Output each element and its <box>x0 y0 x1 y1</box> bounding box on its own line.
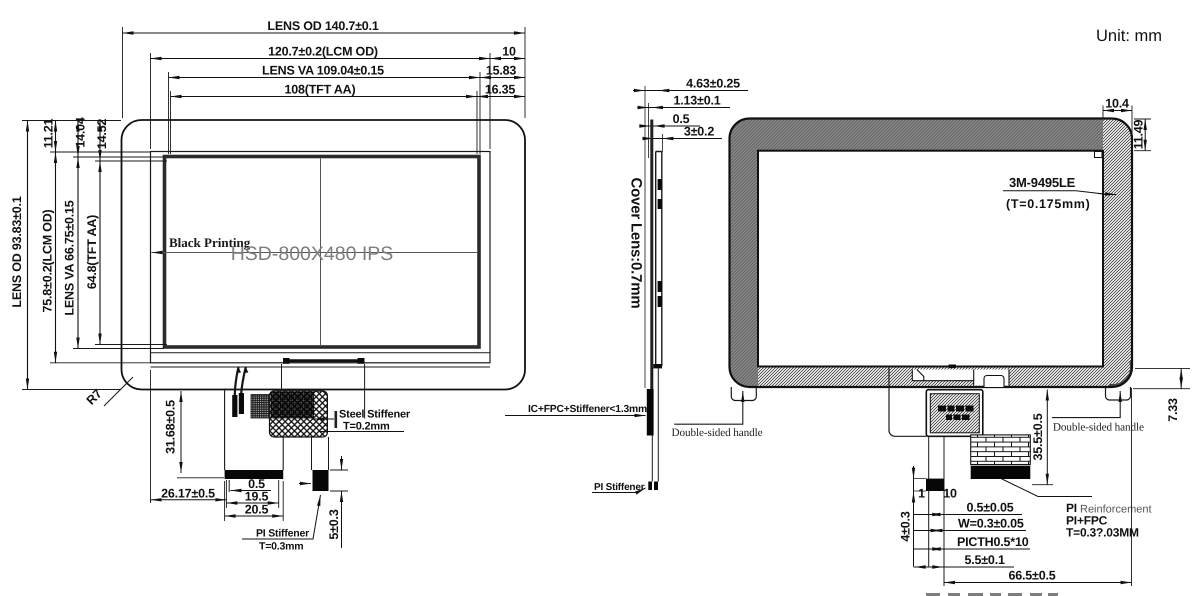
svg-text:5.5±0.1: 5.5±0.1 <box>965 553 1005 567</box>
svg-text:10: 10 <box>943 487 957 501</box>
svg-text:15.83: 15.83 <box>486 64 517 78</box>
svg-text:31.68±0.5: 31.68±0.5 <box>163 400 177 454</box>
svg-text:14.04: 14.04 <box>73 117 87 148</box>
svg-text:(T=0.175mm): (T=0.175mm) <box>1006 197 1090 211</box>
svg-text:14.52: 14.52 <box>95 119 109 150</box>
svg-text:11.49: 11.49 <box>1131 119 1145 149</box>
svg-text:Double-sided handle: Double-sided handle <box>672 427 763 439</box>
svg-text:W=0.3±0.05: W=0.3±0.05 <box>958 517 1024 531</box>
svg-text:Steel Stiffener: Steel Stiffener <box>339 409 411 421</box>
svg-text:1.13±0.1: 1.13±0.1 <box>674 94 721 108</box>
svg-text:66.5±0.5: 66.5±0.5 <box>1009 569 1056 583</box>
svg-text:16.35: 16.35 <box>485 83 516 97</box>
svg-text:LENS OD 140.7±0.1: LENS OD 140.7±0.1 <box>267 19 378 33</box>
svg-text:4.63±0.25: 4.63±0.25 <box>686 77 740 91</box>
svg-text:120.7±0.2(LCM OD): 120.7±0.2(LCM OD) <box>268 45 378 59</box>
svg-text:3M-9495LE: 3M-9495LE <box>1009 175 1076 190</box>
svg-text:108(TFT AA): 108(TFT AA) <box>285 83 356 97</box>
svg-text:LENS VA 109.04±0.15: LENS VA 109.04±0.15 <box>262 64 384 78</box>
svg-text:5±0.3: 5±0.3 <box>327 509 341 539</box>
svg-text:10: 10 <box>502 45 516 59</box>
svg-text:HSD-800X480 IPS: HSD-800X480 IPS <box>231 243 394 265</box>
svg-text:75.8±0.2(LCM OD): 75.8±0.2(LCM OD) <box>40 209 54 312</box>
svg-text:PI Stiffener: PI Stiffener <box>256 528 309 540</box>
svg-text:4±0.3: 4±0.3 <box>898 511 912 541</box>
svg-text:20.5: 20.5 <box>245 503 269 517</box>
svg-text:IC+FPC+Stiffener<1.3mm: IC+FPC+Stiffener<1.3mm <box>528 404 647 415</box>
svg-text:PI Stiffener: PI Stiffener <box>594 482 645 493</box>
svg-text:26.17±0.5: 26.17±0.5 <box>161 487 215 501</box>
svg-text:Cover Lens:0.7mm: Cover Lens:0.7mm <box>628 177 645 308</box>
svg-text:35.5±0.5: 35.5±0.5 <box>1031 413 1045 460</box>
svg-text:T=0.2mm: T=0.2mm <box>343 421 390 433</box>
svg-text:Double-sided handle: Double-sided handle <box>1053 422 1144 434</box>
svg-text:T=0.3mm: T=0.3mm <box>259 541 303 553</box>
svg-text:3±0.2: 3±0.2 <box>684 125 714 139</box>
svg-text:19.5: 19.5 <box>245 490 269 504</box>
svg-text:LENS OD 93.83±0.1: LENS OD 93.83±0.1 <box>10 196 24 307</box>
svg-text:0.5±0.05: 0.5±0.05 <box>967 501 1014 515</box>
svg-text:1: 1 <box>918 487 925 501</box>
svg-text:PICTH0.5*10: PICTH0.5*10 <box>957 535 1029 549</box>
svg-text:10.4: 10.4 <box>1105 97 1129 111</box>
svg-text:64.8(TFT AA): 64.8(TFT AA) <box>85 215 99 289</box>
svg-text:11.21: 11.21 <box>41 118 55 148</box>
svg-text:7.33: 7.33 <box>1166 398 1180 422</box>
svg-text:T=0.3?.03MM: T=0.3?.03MM <box>1066 526 1139 540</box>
svg-text:Unit: mm: Unit: mm <box>1096 27 1162 45</box>
svg-text:LENS VA 66.75±0.15: LENS VA 66.75±0.15 <box>62 200 76 315</box>
